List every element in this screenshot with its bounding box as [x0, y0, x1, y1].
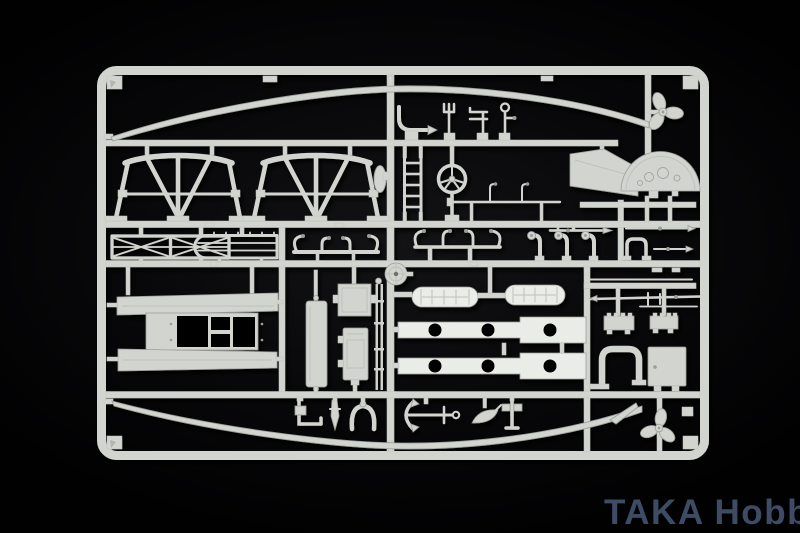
trident-finial — [444, 104, 455, 140]
u-pipe-small — [622, 239, 651, 260]
exhaust-u-pipe — [590, 349, 646, 389]
propeller-upper — [637, 86, 689, 135]
boat-chock-b — [415, 229, 500, 261]
porthole-strip-b — [393, 343, 586, 379]
bridge-dome — [621, 152, 700, 223]
sprue-photo — [0, 0, 800, 533]
boat-cradle-a — [105, 146, 251, 221]
ladder — [403, 146, 423, 221]
hatch-panel — [648, 347, 686, 391]
photo-stage: TAKA Hobby — [0, 0, 800, 533]
wishbone-frame — [352, 397, 375, 429]
watermark-text: TAKA Hobby — [604, 493, 800, 533]
anchor — [406, 397, 459, 432]
skeg-sliver — [610, 403, 693, 424]
curved-pipe — [399, 107, 437, 140]
cowl-vents — [528, 232, 599, 262]
bracket-fitting — [470, 108, 488, 140]
mast-rods — [374, 278, 384, 390]
t-bracket — [502, 396, 522, 428]
rudder-blade — [330, 397, 340, 430]
deck-platform — [107, 267, 283, 371]
liferaft-b — [478, 267, 565, 305]
sprue-runners — [106, 75, 700, 452]
stanchion-loop — [499, 104, 517, 141]
skylight-b — [650, 288, 678, 333]
liferaft-a — [393, 287, 478, 307]
boat-cradle-b — [243, 146, 389, 221]
crossbrace-railing — [112, 227, 229, 261]
ships-wheel — [439, 146, 466, 221]
boat-chock-a — [294, 234, 378, 261]
angle-bracket — [295, 397, 321, 424]
blade-spare — [472, 397, 501, 423]
cabin-box-b — [338, 328, 368, 392]
sheer-rail-upper — [104, 76, 649, 141]
skylight-a — [604, 288, 634, 334]
cabin-box-a — [333, 267, 376, 316]
porthole-strip-a — [393, 317, 586, 343]
side-panel — [306, 270, 327, 393]
